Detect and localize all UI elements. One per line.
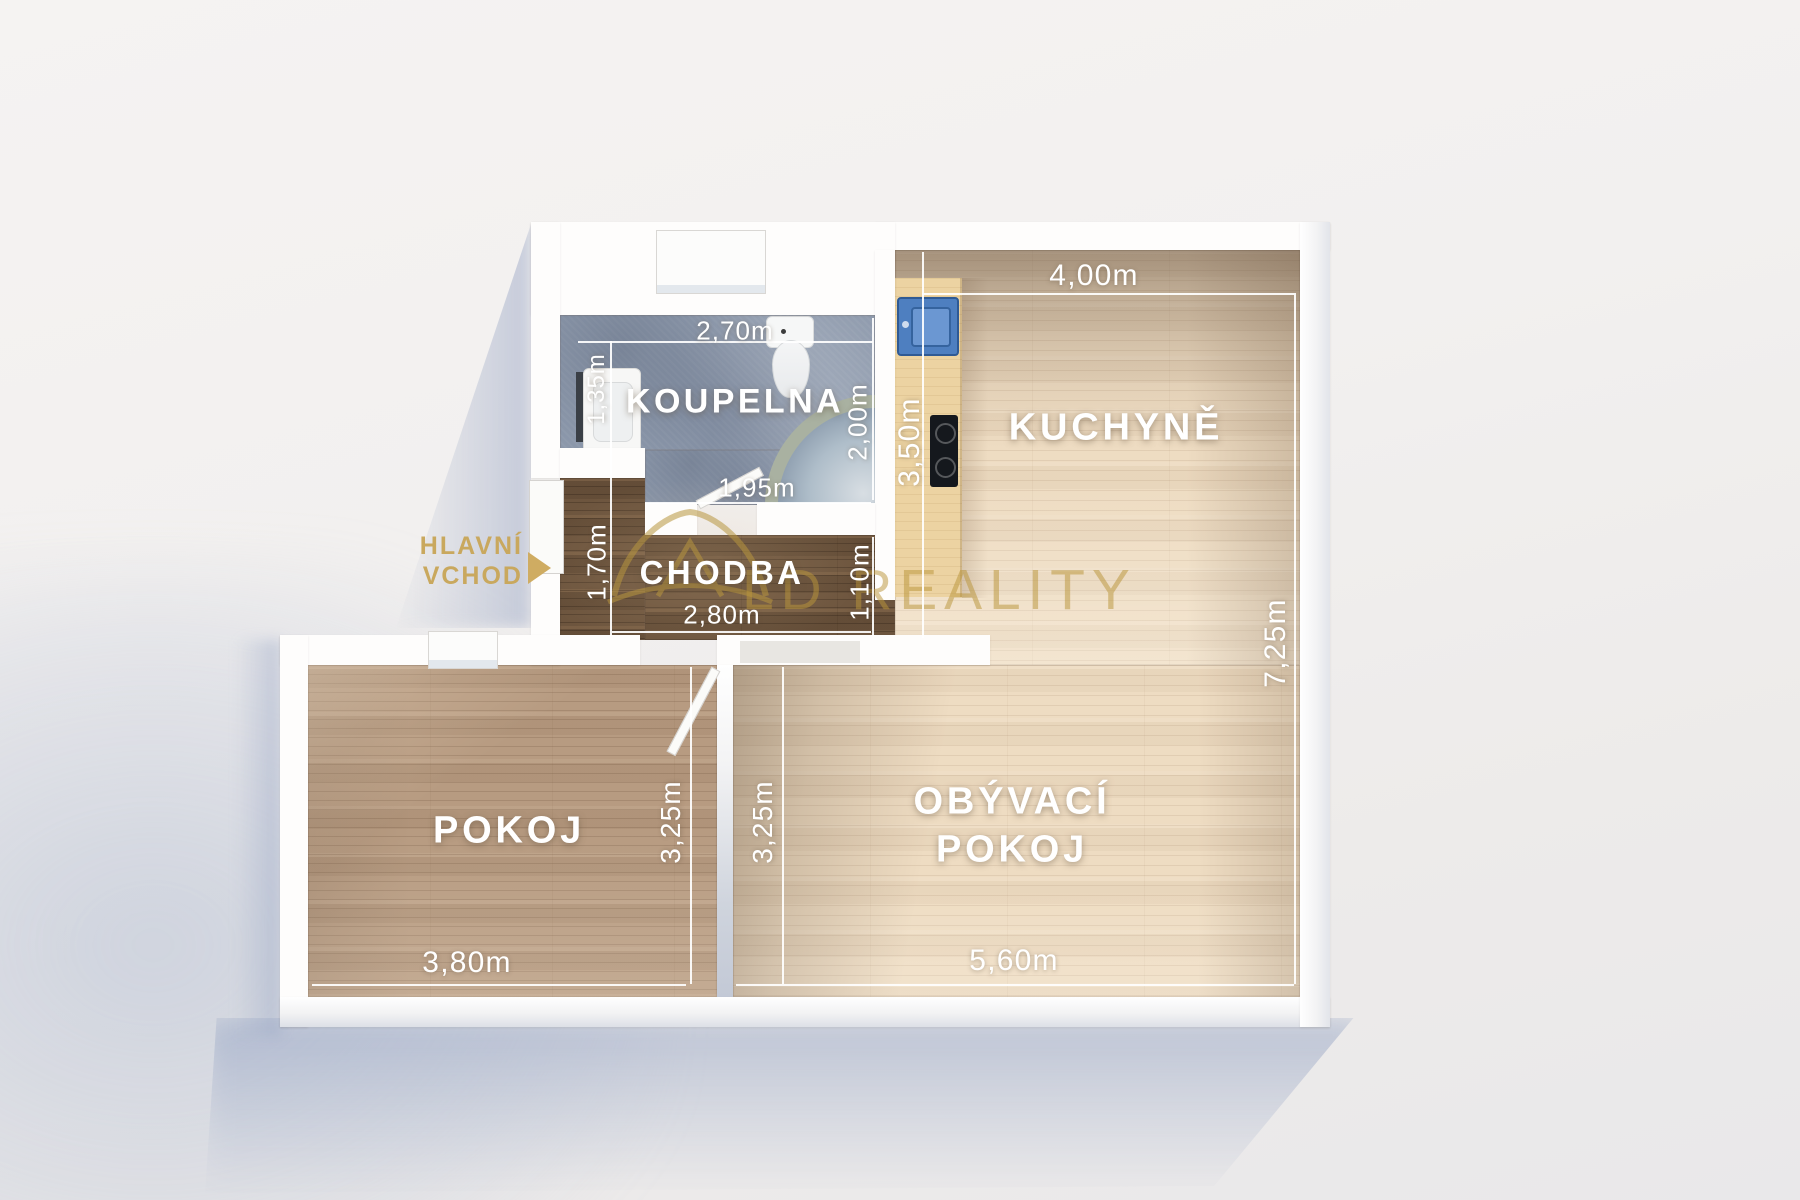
wall-bathroom-bottom-left [645, 503, 697, 535]
burner [935, 423, 956, 444]
main-entrance-line2: VCHOD [378, 562, 523, 592]
sink-basin [911, 307, 951, 347]
wall-bathroom-kitchen [875, 250, 895, 600]
floorplan-canvas: LD REALITY HLAVNÍ VCHOD 2,70m 1,35m 2,00… [0, 0, 1800, 1200]
room-label-hallway: CHODBA [640, 554, 805, 592]
hallway-threshold [740, 641, 860, 663]
cooktop-icon [930, 415, 958, 487]
bathroom-window-icon [656, 230, 766, 294]
wall-right [1300, 222, 1330, 1027]
wall-left-bedroom [280, 635, 308, 1027]
dim-living-width: 5,60m [969, 944, 1058, 978]
building-drop-shadow [205, 1018, 1365, 1193]
dim-bathroom-door: 1,95m [718, 473, 795, 504]
room-label-living: OBÝVACÍ POKOJ [914, 779, 1111, 874]
dim-bedroom-depth: 3,25m [655, 780, 687, 863]
wall-top-kitchen [875, 222, 1330, 250]
dim-hallway-left: 1,70m [582, 523, 613, 600]
room-label-kitchen: KUCHYNĚ [1009, 407, 1224, 450]
sink-faucet [902, 321, 909, 328]
left-wall-shadow [236, 640, 280, 1035]
dim-kitchen-width: 4,00m [1049, 259, 1138, 293]
dim-hallway-right: 1,10m [845, 543, 876, 620]
room-label-bathroom: KOUPELNA [626, 383, 844, 422]
main-entrance-line1: HLAVNÍ [378, 532, 523, 562]
dim-kitchen-counter: 3,50m [893, 397, 927, 486]
wall-partition [717, 665, 733, 997]
room-label-living-line2: POKOJ [914, 826, 1111, 874]
wall-bottom [280, 997, 1330, 1027]
wall-left-bathroom [531, 222, 560, 478]
dim-bathroom-width: 2,70m [696, 316, 773, 347]
dim-hallway-width: 2,80m [683, 600, 760, 631]
room-label-living-line1: OBÝVACÍ [914, 779, 1111, 827]
dim-living-depth: 3,25m [747, 780, 779, 863]
dim-bathroom-depth: 2,00m [843, 383, 874, 460]
wall-bathroom-bottom-right [757, 503, 875, 535]
kitchen-sink-icon [897, 297, 959, 356]
main-entrance-label: HLAVNÍ VCHOD [378, 532, 523, 591]
burner [935, 457, 956, 478]
dim-bathroom-niche: 1,35m [583, 353, 611, 425]
dim-bedroom-width: 3,80m [422, 946, 511, 980]
dimension-dot [781, 329, 786, 334]
bedroom-window-icon [428, 631, 498, 669]
entrance-arrow-icon [528, 552, 551, 584]
wall-bathroom-step [560, 448, 645, 478]
room-label-bedroom: POKOJ [433, 810, 585, 853]
dim-right-side: 7,25m [1259, 598, 1293, 687]
